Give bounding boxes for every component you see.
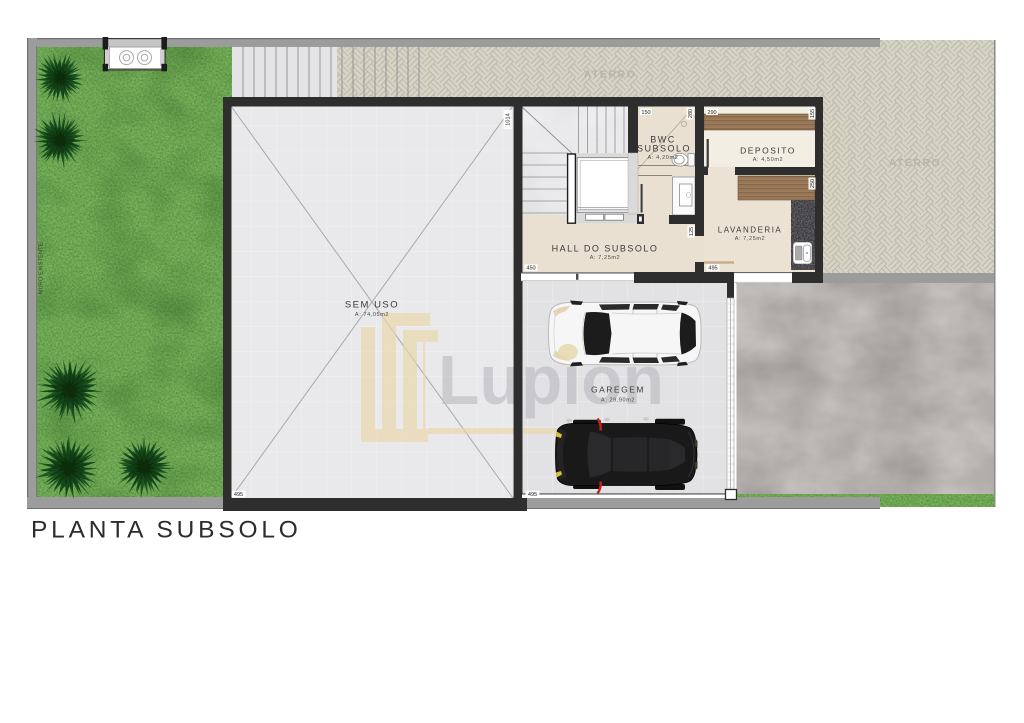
svg-text:A: 74,05m2: A: 74,05m2 [355, 312, 389, 318]
svg-text:450: 450 [526, 266, 535, 272]
svg-text:A: 29,90m2: A: 29,90m2 [601, 398, 635, 404]
svg-text:155: 155 [810, 109, 816, 118]
svg-text:ATERRO: ATERRO [584, 69, 637, 81]
svg-text:MURO EXISTENTE: MURO EXISTENTE [39, 242, 45, 294]
svg-text:280: 280 [688, 109, 694, 118]
svg-text:A: 7,25m2: A: 7,25m2 [735, 236, 765, 242]
svg-text:125: 125 [689, 227, 695, 236]
svg-text:A: 7,25m2: A: 7,25m2 [590, 255, 620, 261]
svg-text:HALL DO SUBSOLO: HALL DO SUBSOLO [552, 244, 659, 254]
svg-text:SEM USO: SEM USO [345, 300, 399, 311]
svg-text:LAVANDERIA: LAVANDERIA [718, 226, 783, 235]
svg-text:290: 290 [707, 110, 716, 116]
svg-text:ATERRO: ATERRO [889, 157, 942, 169]
svg-text:DEPOSITO: DEPOSITO [740, 146, 796, 156]
svg-text:495: 495 [708, 266, 717, 272]
svg-text:A: 4,20m2: A: 4,20m2 [648, 155, 679, 161]
svg-text:GAREGEM: GAREGEM [591, 385, 645, 395]
svg-text:150: 150 [641, 110, 650, 116]
svg-text:495: 495 [528, 492, 537, 498]
svg-text:250: 250 [810, 179, 816, 188]
svg-text:SUBSOLO: SUBSOLO [637, 144, 691, 154]
svg-text:495: 495 [234, 492, 243, 498]
svg-text:1014: 1014 [505, 113, 511, 125]
svg-text:PLANTA SUBSOLO: PLANTA SUBSOLO [31, 517, 302, 544]
svg-text:A: 4,50m2: A: 4,50m2 [753, 157, 783, 163]
